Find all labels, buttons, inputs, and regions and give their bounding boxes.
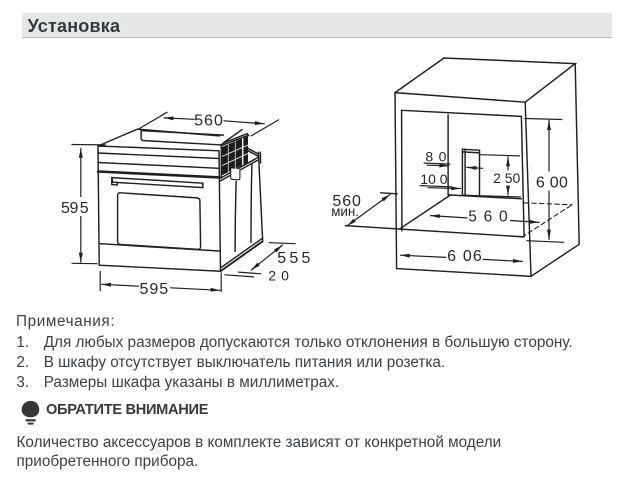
svg-text:10 0: 10 0 [420,171,447,187]
svg-text:595: 595 [140,281,170,298]
svg-text:6 00: 6 00 [536,174,568,191]
svg-text:мин.: мин. [331,204,359,219]
svg-text:2 0: 2 0 [268,268,289,284]
svg-text:560: 560 [194,112,224,129]
svg-text:6 06: 6 06 [447,248,483,265]
svg-text:595: 595 [61,200,89,217]
svg-text:8 0: 8 0 [425,149,447,165]
svg-text:2 50: 2 50 [493,170,520,186]
svg-text:5 6 0: 5 6 0 [468,208,508,225]
svg-text:555: 555 [277,250,313,267]
